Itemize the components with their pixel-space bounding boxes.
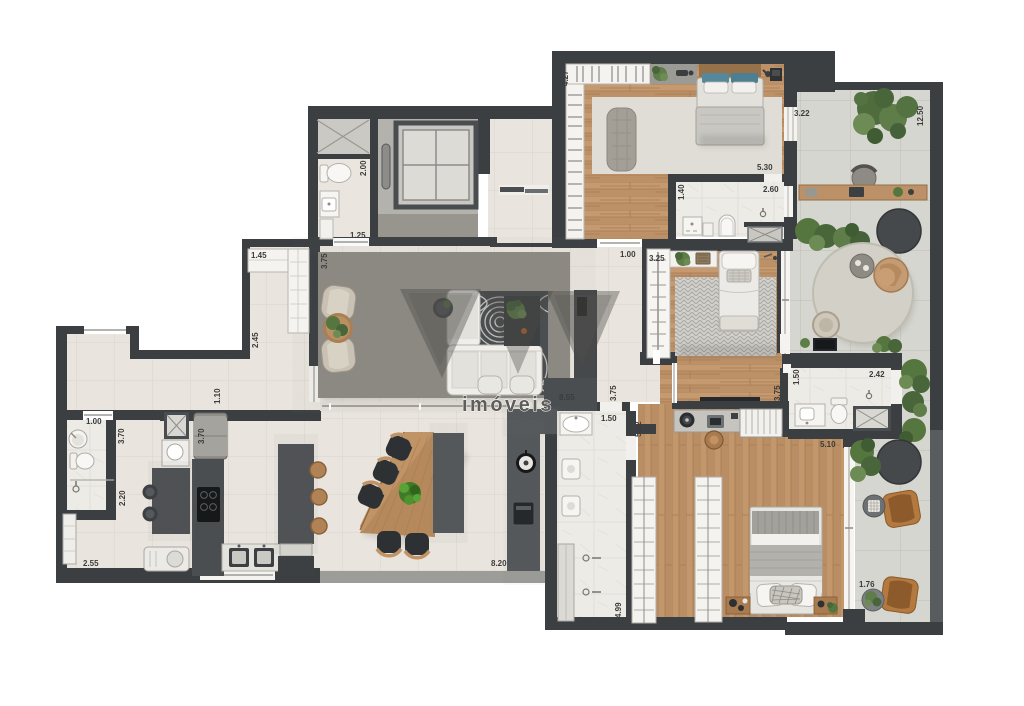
- svg-text:4.99: 4.99: [614, 602, 623, 618]
- svg-text:1.76: 1.76: [859, 580, 875, 589]
- svg-text:3.75: 3.75: [320, 253, 329, 269]
- svg-text:4.27: 4.27: [561, 70, 570, 86]
- svg-text:3.70: 3.70: [117, 428, 126, 444]
- svg-text:1.45: 1.45: [251, 251, 267, 260]
- svg-text:3.75: 3.75: [773, 385, 782, 401]
- svg-text:1.00: 1.00: [86, 417, 102, 426]
- svg-text:1.40: 1.40: [677, 184, 686, 200]
- svg-text:2.00: 2.00: [359, 160, 368, 176]
- svg-text:1.10: 1.10: [213, 388, 222, 404]
- svg-text:1.50: 1.50: [792, 369, 801, 385]
- svg-text:3.70: 3.70: [197, 428, 206, 444]
- svg-text:12.50: 12.50: [916, 105, 925, 126]
- svg-text:2.20: 2.20: [118, 490, 127, 506]
- svg-text:2.45: 2.45: [251, 332, 260, 348]
- svg-text:imóveis: imóveis: [462, 394, 554, 416]
- svg-text:2.55: 2.55: [83, 559, 99, 568]
- svg-text:3.22: 3.22: [794, 109, 810, 118]
- svg-text:3.25: 3.25: [649, 254, 665, 263]
- svg-text:8.20: 8.20: [491, 559, 507, 568]
- svg-text:1.00: 1.00: [620, 250, 636, 259]
- svg-text:2.60: 2.60: [763, 185, 779, 194]
- svg-text:1.25: 1.25: [350, 231, 366, 240]
- svg-text:8.55: 8.55: [559, 393, 575, 402]
- svg-text:5.02: 5.02: [634, 421, 643, 437]
- svg-text:5.10: 5.10: [820, 440, 836, 449]
- svg-text:1.50: 1.50: [601, 414, 617, 423]
- svg-text:2.42: 2.42: [869, 370, 885, 379]
- svg-text:5.30: 5.30: [757, 163, 773, 172]
- svg-text:3.75: 3.75: [609, 385, 618, 401]
